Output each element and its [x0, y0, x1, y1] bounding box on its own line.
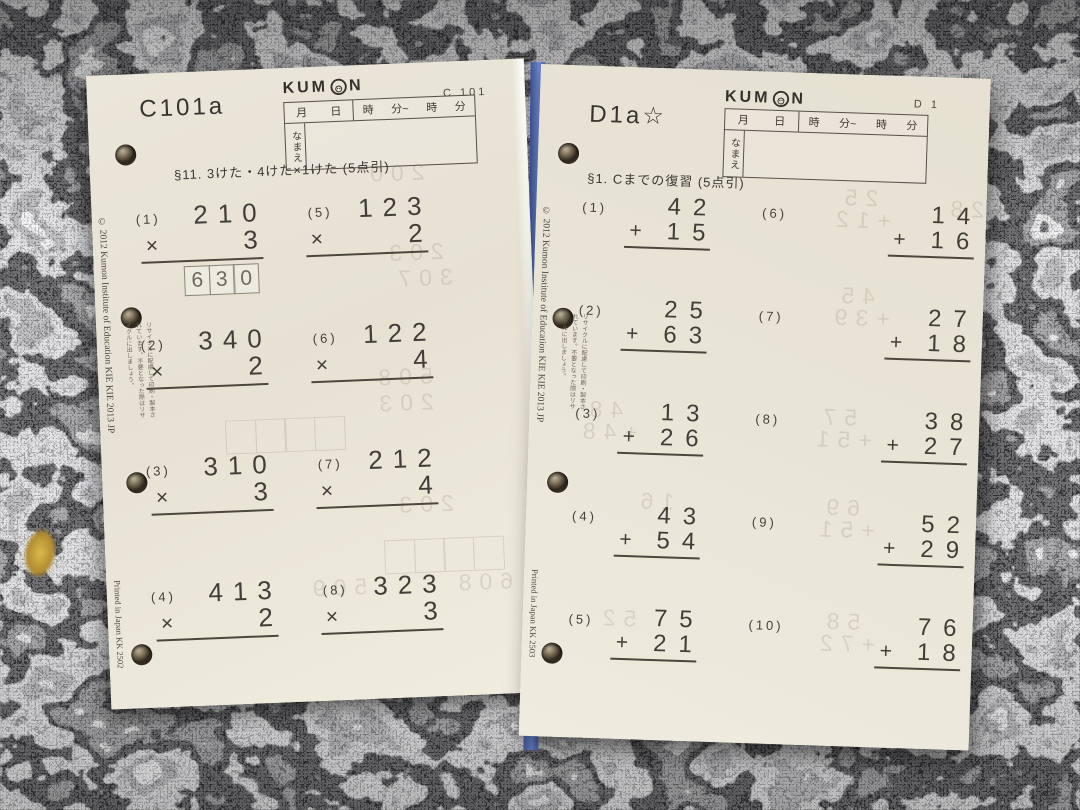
operand-bottom-row: +21 — [615, 630, 692, 658]
operator: + — [893, 229, 906, 252]
answer-line — [878, 564, 964, 569]
operand-bottom: 18 — [927, 331, 979, 358]
operand-top: 25 — [627, 296, 716, 324]
math-problem: (7)212×4 — [311, 442, 492, 575]
math-problem: (5)123×2 — [301, 190, 482, 323]
operator: + — [629, 220, 642, 243]
operator: + — [890, 332, 903, 355]
worksheet-c101a: C101a KUM N C 101 月日 時分~時分 なまえ §11. 3けた・… — [86, 58, 549, 709]
answer-line — [617, 452, 703, 457]
operator: + — [879, 641, 892, 664]
table-header-label: 月 — [738, 112, 750, 128]
operand-bottom-row: +27 — [886, 433, 963, 461]
punch-hole — [541, 642, 563, 664]
operand-top: 14 — [894, 202, 983, 230]
operator: + — [615, 632, 628, 655]
problem-number: (5) — [568, 611, 593, 627]
operand-bottom-row: +26 — [622, 424, 699, 452]
operand-top: 52 — [884, 511, 973, 539]
operand-bottom-row: +18 — [890, 330, 967, 358]
math-block: 76+18 — [879, 614, 957, 672]
table-header-label: 日 — [774, 113, 786, 129]
operator: × — [310, 228, 323, 252]
math-problem: (6)14+16 — [753, 197, 976, 307]
operand-bottom-row: +29 — [883, 536, 960, 564]
math-block: 75+21 — [615, 605, 693, 663]
bleedthrough-text: 200 — [362, 159, 425, 188]
math-block: 27+18 — [889, 305, 967, 363]
answer-line — [884, 358, 970, 363]
operand-top: 27 — [890, 305, 979, 333]
math-block: 14+16 — [893, 202, 971, 260]
copyright-text: © 2012 Kumon Institute of Education KIE … — [97, 217, 116, 433]
math-problem: (4)43+54 — [563, 500, 746, 609]
operand-bottom: 29 — [920, 537, 972, 564]
operand-bottom: 26 — [660, 425, 712, 452]
operand-bottom: 2 — [258, 604, 284, 632]
kumon-logo: KUM N — [725, 88, 807, 109]
operand-top: 38 — [887, 408, 976, 436]
math-problem: (9)52+29 — [743, 506, 966, 616]
copyright-text: © 2012 Kumon Institute of Education KIE … — [534, 206, 551, 422]
math-problem: (8)38+27 — [746, 403, 969, 513]
answer-line — [614, 555, 700, 560]
operand-bottom-row: ×4 — [315, 346, 428, 378]
math-problem: (1)42+15 — [573, 191, 756, 300]
operand-bottom: 4 — [413, 345, 439, 373]
answer-line — [624, 246, 710, 251]
answer-boxes: 630 — [147, 263, 260, 297]
operator: + — [886, 435, 899, 458]
sheet-title: C101a — [139, 92, 226, 123]
answer-line — [881, 461, 967, 466]
operand-bottom: 16 — [930, 228, 982, 255]
table-header-label: 分 — [906, 117, 918, 133]
math-block: 323×3 — [324, 570, 438, 634]
operand-bottom-row: ×4 — [320, 472, 433, 504]
time-cell: 時分~時分 — [799, 112, 928, 136]
operand-bottom-row: +16 — [893, 227, 970, 255]
operand-top: 42 — [630, 193, 719, 221]
math-block: 210×3630 — [144, 199, 260, 297]
table-header-label: 月 — [296, 104, 308, 120]
kumon-logo-text-left: KUM — [282, 78, 328, 98]
table-header-label: 分~ — [839, 115, 857, 132]
operand-top: 76 — [880, 614, 969, 642]
date-cell: 月日 — [284, 100, 354, 123]
problems-grid: (1)42+15(2)25+63(3)13+26(4)43+54(5)75+21… — [560, 191, 977, 719]
operand-bottom: 15 — [666, 219, 718, 246]
math-problem: (5)75+21 — [560, 603, 743, 712]
name-label: なまえ — [723, 130, 745, 177]
problem-number: (6) — [762, 205, 787, 221]
worksheet-d1a: D1a☆ KUM N D 1 月日 時分~時分 なまえ §1. Cまでの復習 (… — [519, 64, 991, 751]
operand-bottom-row: ×3 — [325, 598, 438, 630]
operand-bottom: 3 — [253, 478, 279, 506]
punch-hole — [547, 471, 569, 493]
answer-digit-box: 3 — [208, 264, 235, 295]
operand-bottom: 2 — [248, 352, 274, 380]
operator: × — [315, 354, 328, 378]
operand-bottom-row: ×2 — [310, 220, 423, 252]
operand-bottom-row: ×3 — [155, 478, 268, 510]
table-header-label: 時 — [808, 114, 820, 130]
section-heading: §1. Cまでの復習 (5点引) — [587, 168, 745, 192]
problem-number: (1) — [582, 199, 607, 215]
math-block: 340×2 — [149, 325, 263, 389]
math-block: 43+54 — [619, 502, 697, 560]
kumon-logo-text-left: KUM — [725, 88, 771, 107]
math-block: 123×2 — [309, 193, 423, 257]
operator: + — [622, 426, 635, 449]
operand-bottom-row: +18 — [879, 639, 956, 667]
math-problem: (3)13+26 — [567, 397, 750, 506]
kumon-face-icon — [330, 77, 349, 96]
table-header-label: 日 — [330, 103, 342, 119]
operand-bottom-row: +54 — [619, 527, 696, 555]
operator: × — [145, 235, 158, 259]
operand-bottom-row: ×2 — [150, 352, 263, 384]
math-block: 52+29 — [883, 511, 961, 569]
sheet-title: D1a☆ — [589, 100, 667, 132]
operand-bottom: 18 — [917, 640, 969, 667]
table-header-label: 時 — [426, 99, 438, 115]
operand-bottom: 4 — [418, 471, 444, 499]
answer-digit-box: 6 — [184, 265, 211, 296]
operand-bottom: 3 — [243, 226, 269, 254]
printed-in-japan-text: Printed in Japan KK 2502 — [112, 580, 126, 669]
math-block: 212×4 — [319, 444, 433, 508]
table-header-label: 時 — [362, 101, 374, 117]
printed-in-japan-text: Printed in Japan KK 2503 — [527, 569, 540, 658]
answer-line — [621, 349, 707, 354]
math-block: 42+15 — [629, 193, 707, 251]
math-block: 25+63 — [626, 296, 704, 354]
math-problem: (2)25+63 — [570, 294, 753, 403]
kumon-face-icon — [772, 90, 791, 109]
math-problem: (7)27+18 — [750, 300, 973, 410]
operand-bottom-row: +63 — [626, 321, 703, 349]
math-block: 413×2 — [159, 577, 273, 641]
operator: × — [150, 361, 163, 385]
photo-scene: C101a KUM N C 101 月日 時分~時分 なまえ §11. 3けた・… — [0, 0, 1080, 810]
operand-bottom: 54 — [656, 528, 708, 555]
math-block: 13+26 — [622, 399, 700, 457]
operand-bottom: 63 — [663, 322, 715, 349]
operator: + — [626, 323, 639, 346]
answer-line — [888, 255, 974, 260]
answer-digit-box: 0 — [233, 263, 260, 294]
math-problem: (10)76+18 — [740, 609, 963, 719]
operator: × — [325, 606, 338, 630]
math-problem: (4)413×2 — [144, 575, 321, 708]
punch-hole — [558, 143, 580, 165]
math-problem: (3)310×3 — [139, 449, 316, 582]
problem-number: (4) — [572, 508, 597, 524]
operand-bottom: 3 — [423, 597, 449, 625]
operator: + — [619, 529, 632, 552]
operand-bottom: 27 — [923, 434, 975, 461]
punch-hole — [115, 144, 137, 166]
table-header-label: 分~ — [391, 100, 409, 117]
math-block: 310×3 — [154, 451, 268, 515]
operand-bottom: 21 — [653, 631, 705, 658]
page-code: D 1 — [914, 98, 941, 111]
math-problem: (2)340×2 — [134, 323, 311, 456]
problem-number: (2) — [579, 302, 604, 318]
kumon-logo-text-right: N — [349, 77, 364, 96]
problems-grid: (1)210×3630(2)340×2(3)310×3(4)413×2(5)12… — [129, 190, 497, 708]
operand-bottom-row: ×3 — [145, 227, 258, 259]
operator: + — [883, 538, 896, 561]
answer-line — [874, 667, 960, 672]
kumon-logo-text-right: N — [791, 90, 806, 108]
date-cell: 月日 — [725, 109, 799, 131]
problem-number: (3) — [575, 405, 600, 421]
math-problem: (6)122×4 — [306, 316, 487, 449]
problem-number: (7) — [759, 308, 784, 324]
problem-number: (10) — [748, 617, 784, 633]
operand-bottom-row: ×2 — [160, 604, 273, 636]
problem-number: (9) — [752, 514, 777, 530]
operand-bottom-row: +15 — [629, 218, 706, 246]
kumon-logo: KUM N — [282, 77, 364, 98]
operand-top: 75 — [616, 605, 705, 633]
section-heading: §11. 3けた・4けた×1けた (5点引) — [174, 156, 390, 184]
operand-top: 13 — [623, 399, 712, 427]
table-header-label: 分 — [454, 98, 466, 114]
operator: × — [156, 487, 169, 511]
name-input-area — [743, 131, 926, 183]
math-block: 122×4 — [314, 319, 428, 383]
math-block: 38+27 — [886, 408, 964, 466]
operand-top: 43 — [620, 502, 709, 530]
problem-number: (8) — [755, 411, 780, 427]
math-problem: (8)323×3 — [316, 568, 497, 701]
date-name-table: 月日 時分~時分 なまえ — [722, 108, 928, 184]
operator: × — [320, 480, 333, 504]
answer-line — [610, 658, 696, 663]
table-header-label: 時 — [876, 116, 888, 132]
math-problem: (1)210×3630 — [129, 197, 306, 330]
operator: × — [161, 612, 174, 636]
operand-bottom: 2 — [408, 220, 434, 248]
